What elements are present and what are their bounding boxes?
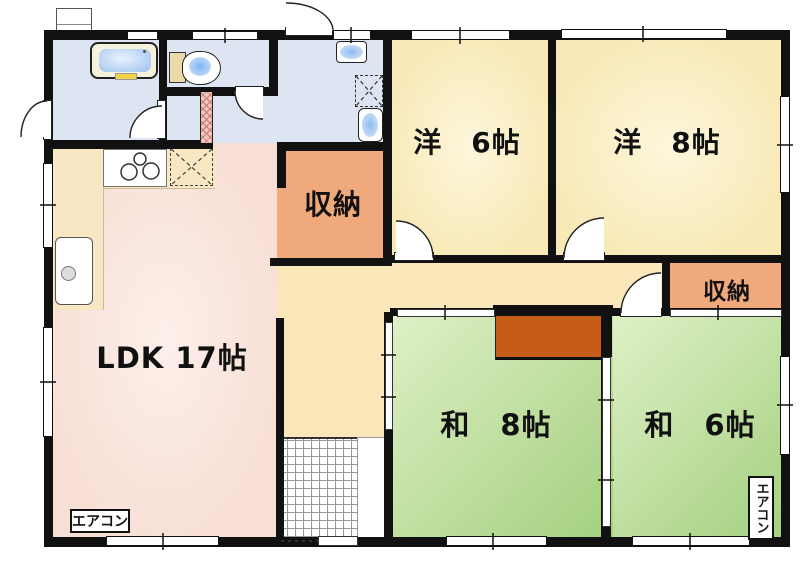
wall-western6-western8 xyxy=(548,30,556,262)
sliding-door-japanese8-left xyxy=(385,322,393,430)
wall-toilet-washroom xyxy=(269,38,278,96)
window-japanese6-right xyxy=(780,356,790,455)
fusuma-japanese8-japanese6 xyxy=(602,357,611,527)
room-label-western6: 洋 6帖 xyxy=(413,121,520,161)
door-leaf-western6 xyxy=(394,252,434,261)
wall-storage-upper-left xyxy=(277,143,286,188)
sliding-door-storage-lower xyxy=(670,309,782,317)
entrance-door xyxy=(318,536,358,546)
partition-accordion xyxy=(200,92,213,143)
room-label-ldk: LDK 17帖 xyxy=(96,335,247,377)
gas-stove xyxy=(103,149,167,187)
door-leaf-western8 xyxy=(563,252,605,261)
aircon-label-ldk: エアコン xyxy=(72,511,128,531)
wash-basin xyxy=(358,108,383,142)
window-ldk-left-2 xyxy=(43,327,53,437)
aircon-box-japanese6: エアコン xyxy=(748,476,774,540)
window-western8-right xyxy=(780,96,790,193)
window-japanese8-bottom xyxy=(446,536,547,546)
window-ldk-bottom xyxy=(106,536,219,546)
door-leaf-side-exterior xyxy=(43,100,52,140)
corridor-floor-vertical xyxy=(277,266,391,437)
room-label-storage-lower: 収納 xyxy=(703,272,751,306)
bathtub xyxy=(90,42,158,79)
door-leaf-bathroom xyxy=(157,100,166,139)
door-leaf-japanese6 xyxy=(620,308,662,317)
wall-washroom-western6 xyxy=(383,30,392,266)
floor-plan: 洋 6帖 洋 8帖 収納 収納 LDK 17帖 和 8帖 和 6帖 エアコン エ… xyxy=(0,0,800,562)
window-western6-top xyxy=(411,30,510,40)
door-leaf-back-entrance xyxy=(285,27,333,36)
room-label-japanese6: 和 6帖 xyxy=(644,402,755,444)
oshiire-closet xyxy=(495,316,604,360)
wall-ldk-corridor xyxy=(276,318,284,547)
room-label-western8: 洋 8帖 xyxy=(613,121,720,161)
window-washroom xyxy=(333,30,371,40)
window-japanese6-bottom xyxy=(632,536,750,546)
wall-storage-upper-top xyxy=(277,142,391,151)
toilet xyxy=(169,51,219,83)
room-label-japanese8: 和 8帖 xyxy=(440,402,551,444)
hand-wash-sink xyxy=(336,41,367,63)
aircon-label-japanese6: エアコン xyxy=(752,482,771,534)
sliding-door-japanese8-top xyxy=(397,309,495,317)
window-bath-small xyxy=(127,31,158,40)
aircon-box-ldk: エアコン xyxy=(70,509,130,533)
room-label-storage-upper: 収納 xyxy=(304,183,362,223)
wall-washroom-kitchen xyxy=(44,140,213,149)
washing-machine-pan xyxy=(355,75,383,107)
window-western8-top xyxy=(561,29,727,39)
door-leaf-toilet xyxy=(235,86,264,95)
wall-closet-top xyxy=(493,305,613,316)
kitchen-sink xyxy=(55,237,93,305)
kitchen-dashed-space xyxy=(170,148,213,186)
entrance-tile xyxy=(279,437,357,537)
window-toilet xyxy=(192,31,258,40)
wall-storage-upper-bottom xyxy=(270,258,391,266)
window-ldk-left-1 xyxy=(43,163,53,248)
